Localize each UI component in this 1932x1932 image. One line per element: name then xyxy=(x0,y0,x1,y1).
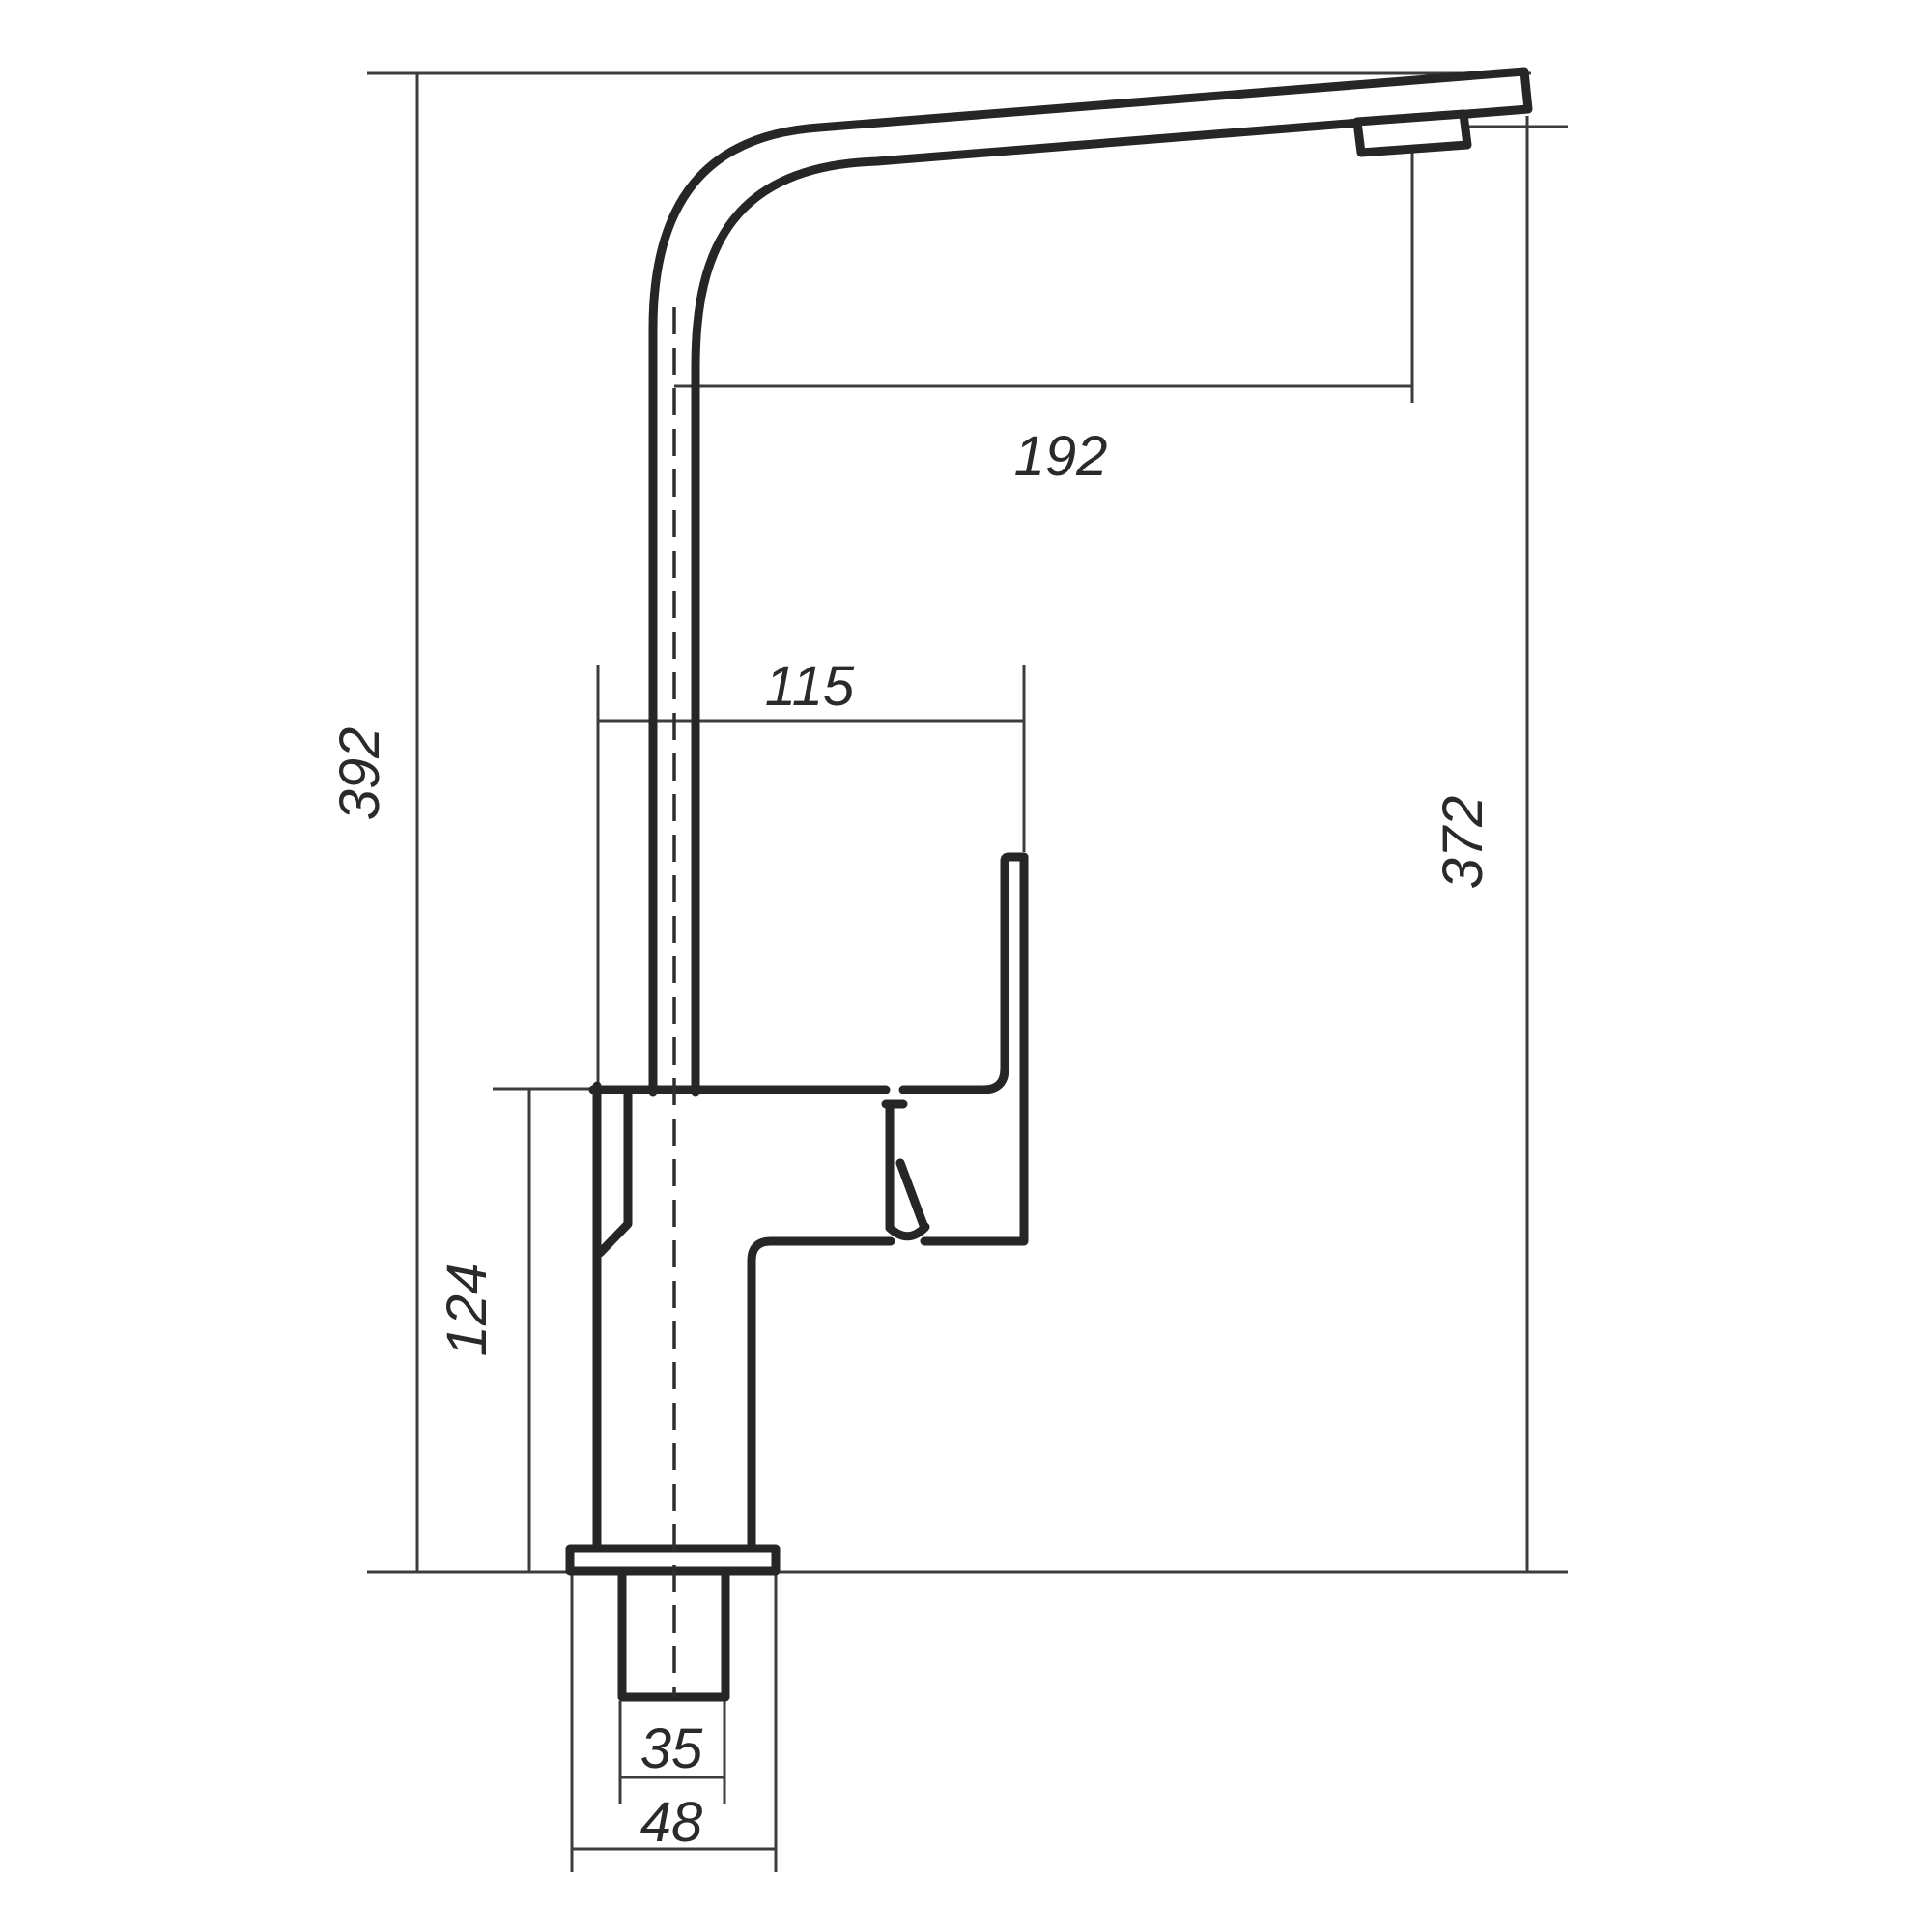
dim-label-spout-reach: 192 xyxy=(1014,425,1108,488)
body-left-chamfer xyxy=(600,1090,628,1253)
aerator xyxy=(1357,114,1467,153)
dim-label-spout-height: 372 xyxy=(1432,796,1494,890)
dimension-labels: 392 372 192 115 124 35 48 xyxy=(328,425,1494,1854)
joint-diagonal xyxy=(900,1163,924,1228)
drawing-page: 392 372 192 115 124 35 48 xyxy=(0,0,1932,1932)
dimension-lines xyxy=(367,73,1568,1872)
technical-drawing: 392 372 192 115 124 35 48 xyxy=(0,0,1932,1932)
faucet-outline xyxy=(570,71,1528,1697)
neck-right-side xyxy=(752,1241,891,1548)
handle-lever xyxy=(903,857,1024,1241)
dim-label-total-height: 392 xyxy=(328,727,391,821)
spout-outline xyxy=(653,71,1528,1093)
dim-label-shank-width: 35 xyxy=(640,1718,703,1780)
dim-label-body-depth: 115 xyxy=(765,655,855,718)
dim-label-body-height: 124 xyxy=(436,1264,498,1357)
dim-label-flange-width: 48 xyxy=(640,1791,703,1854)
